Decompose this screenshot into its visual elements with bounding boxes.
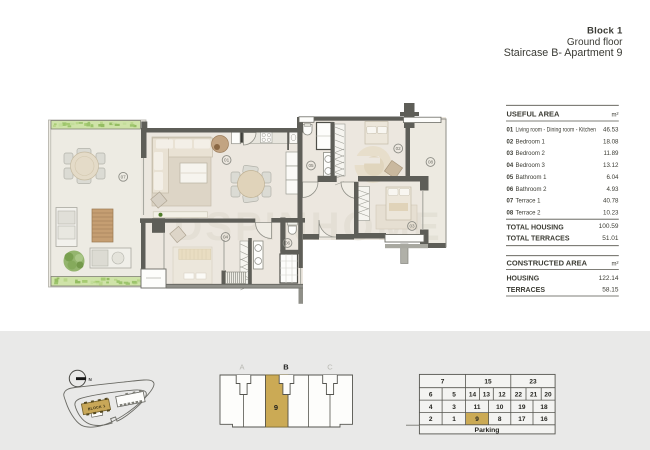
svg-text:4.93: 4.93 <box>606 186 619 193</box>
svg-text:Ground floor: Ground floor <box>567 37 623 48</box>
svg-text:Parking: Parking <box>475 427 500 434</box>
svg-text:B: B <box>283 363 289 372</box>
svg-text:20: 20 <box>544 391 552 398</box>
svg-text:Bedroom 2: Bedroom 2 <box>516 151 546 157</box>
svg-text:122.14: 122.14 <box>599 275 619 282</box>
svg-text:11: 11 <box>474 404 481 411</box>
svg-text:03: 03 <box>507 151 514 157</box>
svg-text:05: 05 <box>507 175 514 181</box>
svg-text:13.12: 13.12 <box>603 162 619 169</box>
svg-text:04: 04 <box>507 163 514 169</box>
svg-text:C: C <box>327 363 333 372</box>
svg-text:07: 07 <box>121 175 127 180</box>
svg-text:7: 7 <box>441 379 445 386</box>
svg-text:100.59: 100.59 <box>599 223 619 230</box>
svg-text:01: 01 <box>224 158 230 163</box>
svg-text:A: A <box>239 363 244 372</box>
svg-text:10.23: 10.23 <box>603 210 619 217</box>
svg-text:02: 02 <box>507 139 514 145</box>
svg-text:23: 23 <box>529 379 537 386</box>
svg-text:TOTAL TERRACES: TOTAL TERRACES <box>507 236 570 243</box>
svg-text:9: 9 <box>475 416 479 423</box>
svg-text:14: 14 <box>469 391 477 398</box>
svg-text:11.89: 11.89 <box>603 150 619 157</box>
svg-text:m²: m² <box>612 262 619 268</box>
svg-text:6.04: 6.04 <box>606 174 619 181</box>
svg-text:58.15: 58.15 <box>602 287 619 294</box>
svg-text:04: 04 <box>223 235 229 240</box>
svg-text:16: 16 <box>540 416 548 423</box>
svg-text:51.01: 51.01 <box>602 235 619 242</box>
svg-text:01: 01 <box>507 128 514 134</box>
svg-text:08: 08 <box>507 211 514 217</box>
svg-text:8: 8 <box>498 416 502 423</box>
svg-text:6: 6 <box>429 391 433 398</box>
svg-text:46.53: 46.53 <box>603 127 619 134</box>
svg-text:m²: m² <box>612 113 619 119</box>
svg-text:08: 08 <box>428 160 434 165</box>
svg-text:Bedroom 1: Bedroom 1 <box>516 139 546 145</box>
svg-text:13: 13 <box>483 391 491 398</box>
svg-text:2: 2 <box>429 416 433 423</box>
svg-text:9: 9 <box>274 403 278 412</box>
svg-text:HOUSING: HOUSING <box>507 276 540 283</box>
svg-text:Terrace 1: Terrace 1 <box>516 199 542 205</box>
svg-text:02: 02 <box>396 146 402 151</box>
svg-text:Living room - Dining room - Ki: Living room - Dining room - Kitchen <box>516 128 597 134</box>
svg-text:17: 17 <box>518 416 526 423</box>
svg-text:19: 19 <box>518 404 526 411</box>
svg-text:Block 1: Block 1 <box>587 26 623 37</box>
svg-text:10: 10 <box>496 404 504 411</box>
svg-text:CONSTRUCTED AREA: CONSTRUCTED AREA <box>507 259 588 268</box>
svg-text:Bathroom 1: Bathroom 1 <box>516 175 548 181</box>
svg-text:TERRACES: TERRACES <box>507 287 546 294</box>
svg-text:Terrace 2: Terrace 2 <box>516 211 542 217</box>
svg-text:Bathroom 2: Bathroom 2 <box>516 187 548 193</box>
svg-text:Staircase B- Apartment 9: Staircase B- Apartment 9 <box>504 47 623 59</box>
svg-text:Bedroom 3: Bedroom 3 <box>516 163 546 169</box>
svg-text:18.08: 18.08 <box>603 138 619 145</box>
svg-text:1: 1 <box>452 416 456 423</box>
svg-text:15: 15 <box>484 379 492 386</box>
svg-text:USEFUL AREA: USEFUL AREA <box>507 110 561 119</box>
svg-text:21: 21 <box>530 391 538 398</box>
svg-text:5: 5 <box>452 391 456 398</box>
svg-text:18: 18 <box>540 404 548 411</box>
svg-text:22: 22 <box>515 391 523 398</box>
svg-text:06: 06 <box>507 187 514 193</box>
svg-text:40.78: 40.78 <box>603 198 619 205</box>
svg-text:05: 05 <box>308 163 314 168</box>
svg-text:N: N <box>89 377 92 382</box>
svg-text:06: 06 <box>285 241 291 246</box>
svg-text:TOTAL HOUSING: TOTAL HOUSING <box>507 225 565 232</box>
svg-text:3: 3 <box>452 404 456 411</box>
svg-text:03: 03 <box>409 224 415 229</box>
svg-text:07: 07 <box>507 199 514 205</box>
svg-text:4: 4 <box>429 404 433 411</box>
svg-text:12: 12 <box>498 391 506 398</box>
